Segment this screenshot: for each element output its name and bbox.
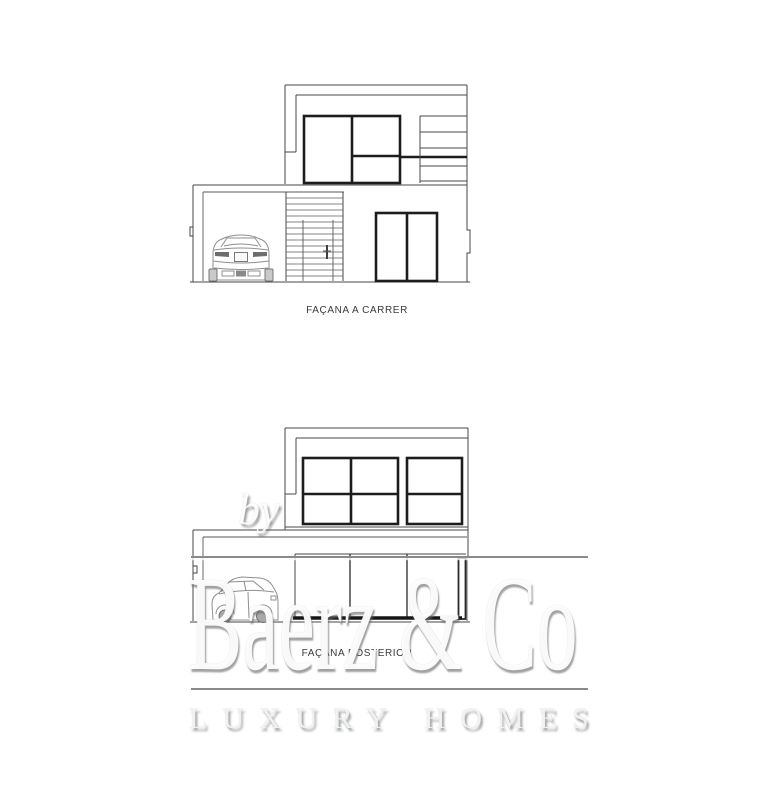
car-rear-view [209,235,273,281]
watermark-by: by [238,488,280,532]
upper-window-right [407,458,462,524]
entrance-double-door [376,213,437,281]
blueprint-page: FAÇANA A CARRER [0,0,777,793]
street-facade-label: FAÇANA A CARRER [185,305,529,316]
upper-window-left [303,458,398,524]
watermark-brand: Baerz & Co [188,556,578,692]
watermark-tagline: LUXURY HOMES [189,704,604,734]
watermark-bottom-rule [191,688,588,690]
upper-window [304,116,467,183]
slatted-garage-door [286,192,343,281]
louver-panel [420,116,467,183]
street-facade-drawing [185,78,480,293]
